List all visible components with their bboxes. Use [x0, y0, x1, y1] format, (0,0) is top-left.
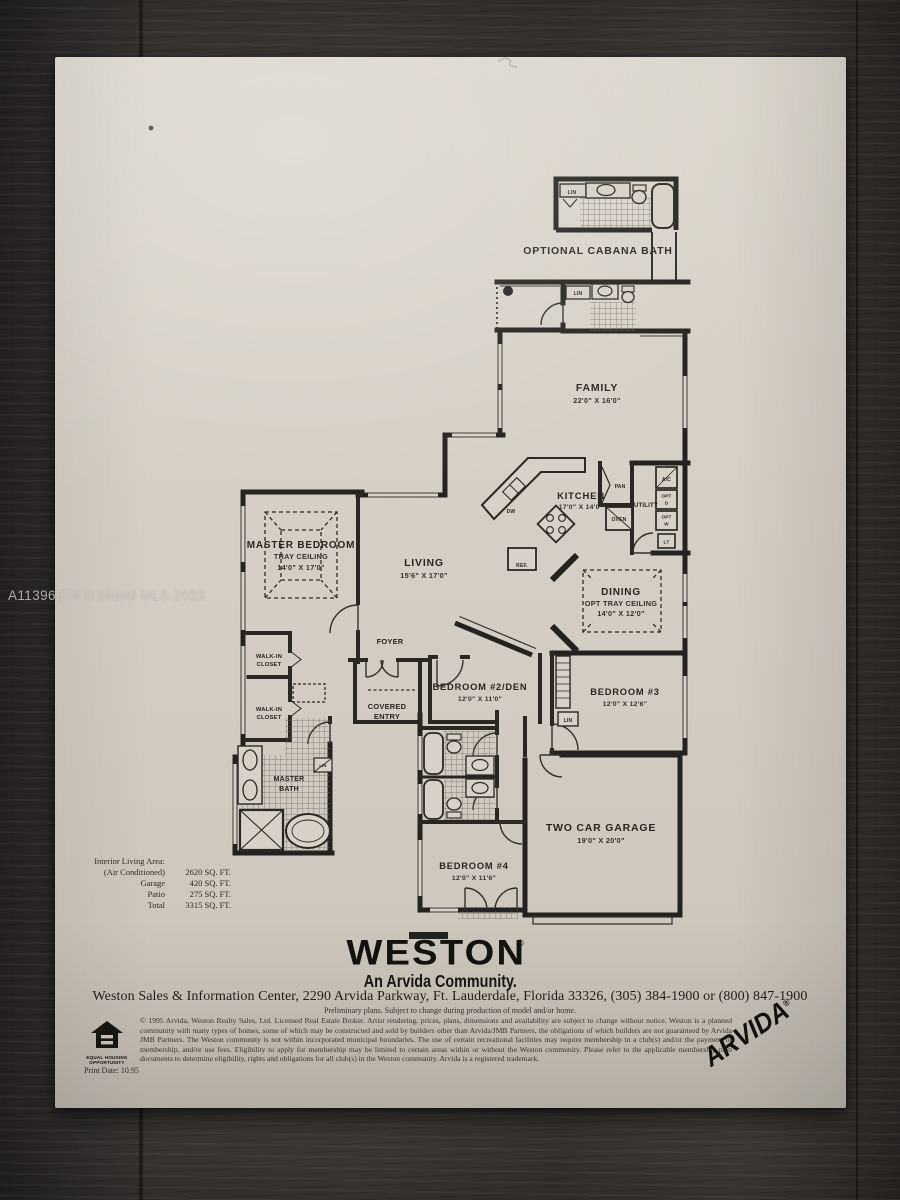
hall-bath-tile — [590, 302, 636, 331]
toilet-icon — [622, 292, 634, 303]
optd-label2: D — [665, 501, 669, 506]
legal-disclaimer: © 1995 Arvida, Weston Realty Sales, Ltd.… — [140, 1016, 732, 1064]
nook-column — [503, 286, 513, 296]
area-value: 3315 SQ. FT. — [169, 900, 231, 911]
area-label: Total — [53, 900, 165, 911]
master-bath-label1: MASTER — [274, 776, 305, 783]
ref-label: REF. — [516, 563, 528, 569]
toilet-icon — [447, 741, 461, 753]
area-value: 275 SQ. FT. — [169, 889, 231, 900]
paper-speck — [149, 126, 154, 131]
master-bedroom-dims: 14'0" X 17'0" — [277, 563, 325, 572]
area-row: Total3315 SQ. FT. — [53, 900, 231, 911]
master-bedroom-sub: TRAY CEILING — [274, 552, 328, 561]
oven-label: OVEN — [612, 517, 627, 523]
print-date: Print Date: 10.95 — [84, 1066, 139, 1075]
bathtub-icon — [652, 184, 674, 228]
arvida-logo: ARVIDA® — [698, 1022, 808, 1092]
toilet-icon — [447, 798, 461, 810]
sink-icon — [472, 783, 488, 794]
optw-label1: OPT — [661, 515, 671, 520]
mls-watermark: A11396374 © Miami MLS 2023 — [8, 588, 205, 603]
bedroom4-label: BEDROOM #4 — [439, 861, 509, 871]
dining-dims: 14'0" X 12'0" — [597, 609, 645, 618]
living-dims: 15'6" X 17'0" — [400, 571, 448, 580]
cabana-bath: LIN OPTIONAL CABANA BATH — [523, 179, 676, 280]
equal-housing-icon — [89, 1020, 125, 1050]
bedroom3-closet: LIN — [556, 656, 578, 726]
area-value: 420 SQ. FT. — [169, 878, 231, 889]
optd-label1: OPT — [661, 494, 671, 499]
lin-label: LIN — [574, 291, 583, 297]
garage-label: TWO CAR GARAGE — [546, 822, 656, 834]
area-label: Garage — [53, 878, 165, 889]
bathtub-icon — [286, 814, 330, 848]
sink-icon — [597, 185, 615, 196]
ac-label: A/C — [662, 477, 671, 483]
walkin2-label2: CLOSET — [257, 715, 282, 721]
area-value — [169, 856, 231, 867]
master-bath-label2: BATH — [279, 786, 299, 793]
kitchen-dims: 17'0" X 14'0" — [559, 504, 604, 511]
lin-label: LIN — [564, 718, 573, 724]
utility-label: UTILITY — [634, 503, 658, 509]
listing-photo: LIN OPTIONAL CABANA BATH — [0, 0, 900, 1200]
cabana-label: OPTIONAL CABANA BATH — [523, 245, 672, 257]
bathtub-icon — [424, 733, 443, 774]
sink-icon — [472, 760, 488, 771]
lt-label: LT — [664, 540, 670, 546]
area-summary: Interior Living Area: (Air Conditioned)2… — [53, 856, 231, 911]
dining-label: DINING — [601, 587, 641, 598]
bedroom3-label: BEDROOM #3 — [590, 687, 659, 697]
area-row: Patio275 SQ. FT. — [53, 889, 231, 900]
equal-housing-logo: EQUAL HOUSING OPPORTUNITY — [84, 1020, 130, 1066]
hall-bath: LIN — [503, 284, 636, 331]
foyer-label: FOYER — [377, 637, 404, 646]
pan-label: PAN — [615, 484, 626, 490]
bathtub-icon — [424, 780, 443, 819]
bedroom2-window-line — [460, 617, 537, 649]
area-row: Interior Living Area: — [53, 856, 231, 867]
sink-icon — [243, 780, 257, 800]
area-label: Patio — [53, 889, 165, 900]
walkin1-label2: CLOSET — [257, 662, 282, 668]
walkin2-label1: WALK-IN — [256, 707, 282, 713]
covered-entry-label1: COVERED — [368, 702, 407, 711]
sink-icon — [598, 286, 612, 296]
dw-label: DW — [507, 509, 516, 515]
master-bedroom-label: MASTER BEDROOM — [247, 540, 355, 551]
optw-label2: W — [664, 522, 669, 527]
lin-label: LIN — [319, 763, 326, 768]
sales-center-address: Weston Sales & Information Center, 2290 … — [55, 989, 845, 1005]
area-row: (Air Conditioned)2620 SQ. FT. — [53, 867, 231, 878]
bedroom3-dims: 12'0" X 12'6" — [603, 701, 648, 708]
weston-logo: WESTON® An Arvida Community. — [290, 934, 590, 992]
garage-door-panel — [533, 917, 672, 924]
area-label: (Air Conditioned) — [53, 867, 165, 878]
cooktop-icon — [538, 506, 575, 543]
weston-wordmark: WESTON — [347, 933, 527, 974]
sink-icon — [243, 750, 257, 770]
area-label: Interior Living Area: — [53, 856, 165, 867]
dining-sub: OPT TRAY CEILING — [585, 599, 658, 608]
area-value: 2620 SQ. FT. — [169, 867, 231, 878]
faint-pencil-mark — [498, 58, 517, 67]
family-dims: 22'0" X 16'0" — [573, 396, 621, 405]
kitchen-label: KITCHEN — [557, 491, 605, 502]
dining-corner-walls — [552, 555, 577, 651]
living-label: LIVING — [404, 557, 444, 569]
bedroom2-window-wall — [455, 623, 532, 655]
eho-text-line2: OPPORTUNITY — [84, 1060, 130, 1065]
bedroom2-label: BEDROOM #2/DEN — [433, 682, 528, 692]
covered-entry-label2: ENTRY — [374, 712, 400, 721]
garage-dims: 19'0" X 20'0" — [577, 836, 625, 845]
closet-door — [563, 199, 577, 207]
family-label: FAMILY — [576, 382, 618, 394]
bedroom2-dims: 12'0" X 11'0" — [458, 696, 502, 703]
toilet-icon — [632, 191, 646, 204]
bedroom4-dims: 12'0" X 11'6" — [452, 875, 496, 882]
preliminary-note: Preliminary plans. Subject to change dur… — [55, 1006, 845, 1015]
cabana-lin-label: LIN — [568, 190, 577, 196]
area-row: Garage420 SQ. FT. — [53, 878, 231, 889]
bedroom4-window-sill — [458, 911, 518, 919]
walkin1-label1: WALK-IN — [256, 654, 282, 660]
